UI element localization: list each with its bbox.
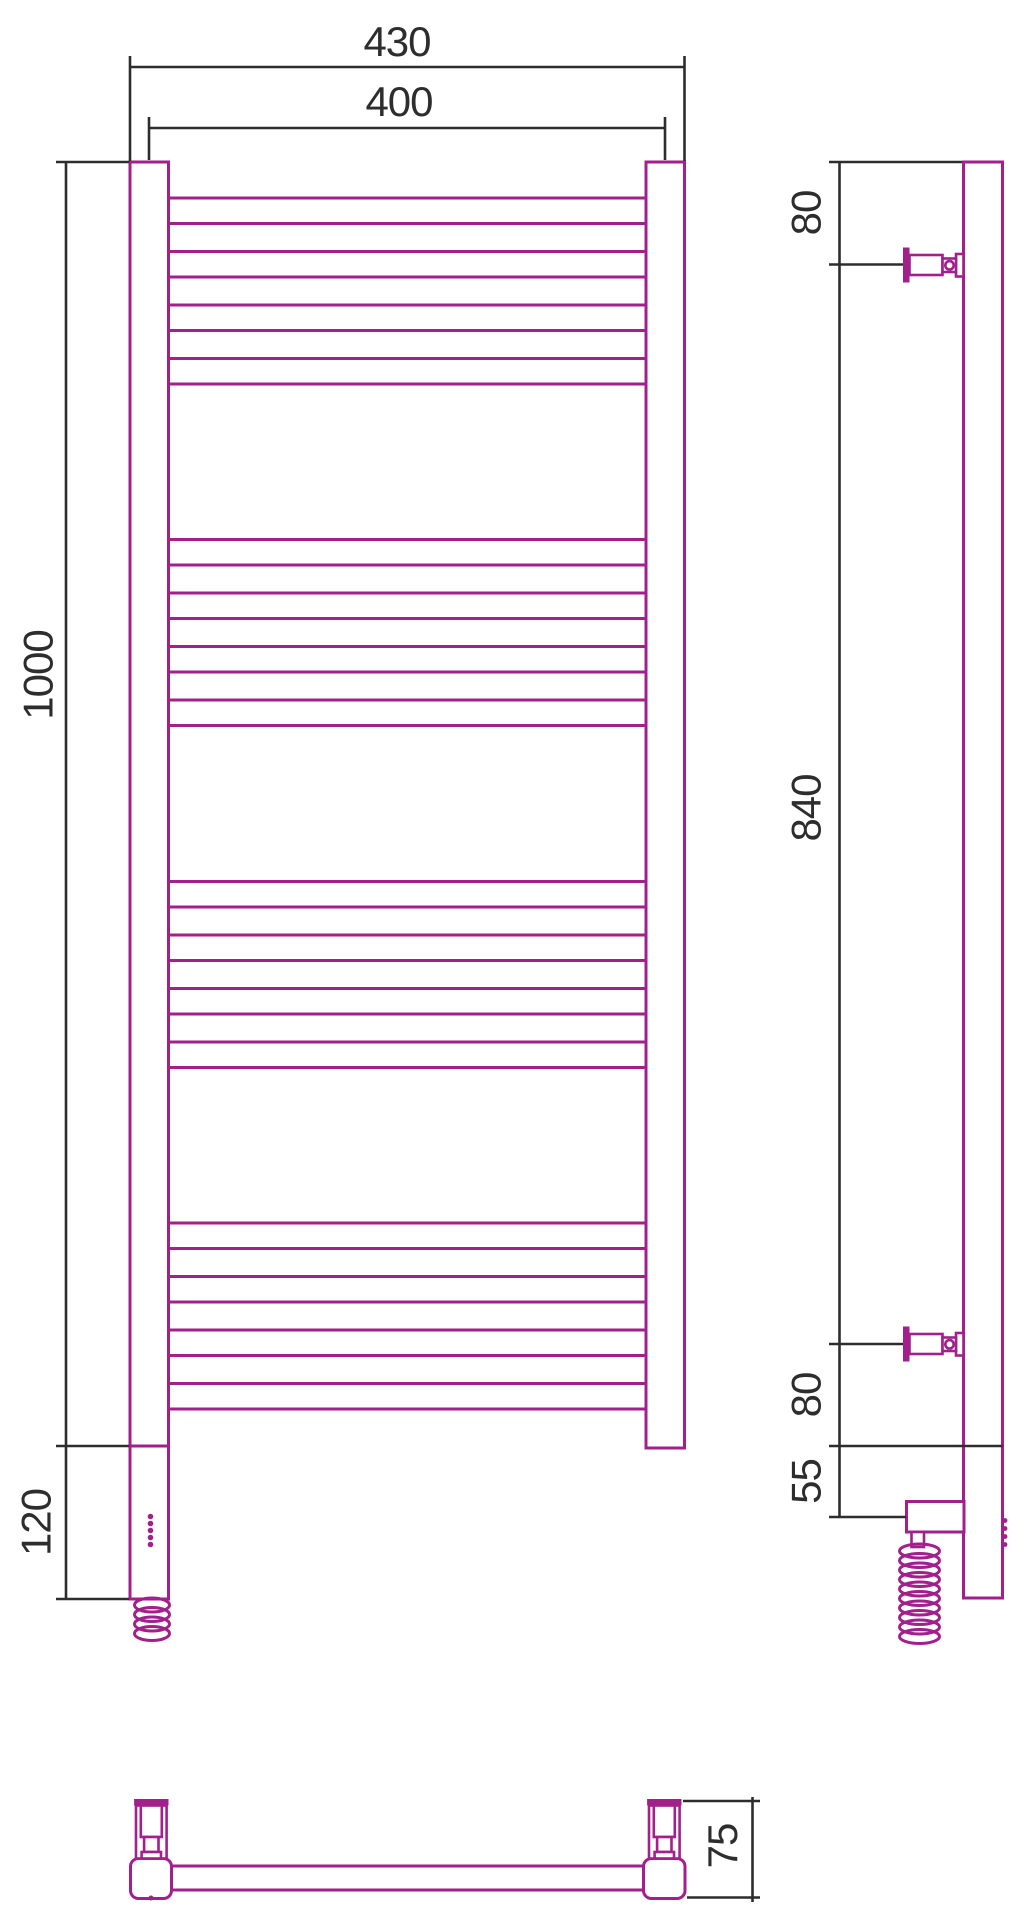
dim-label-bracket-span: 840 [783, 774, 830, 841]
horizontal-rung [169, 935, 647, 961]
dim-label-depth: 75 [699, 1824, 746, 1869]
horizontal-rung [169, 540, 647, 566]
bracket-base [655, 1852, 674, 1859]
front-right-vertical-tube [646, 162, 685, 1448]
side-heater-box [907, 1502, 965, 1533]
side-view [900, 162, 1008, 1644]
dim-label-heater-section: 120 [13, 1489, 60, 1556]
led-nub [1003, 1534, 1008, 1539]
drawing-page: 430 400 1000 120 [0, 0, 1024, 1920]
horizontal-rung [169, 1330, 647, 1356]
horizontal-rung [169, 700, 647, 726]
bottom-led-nub [149, 1896, 154, 1901]
bracket-arm [910, 255, 943, 275]
side-cable-coil [900, 1544, 940, 1644]
led-dot [148, 1542, 154, 1548]
bracket-clamp [144, 1837, 158, 1852]
bracket-arm [910, 1334, 943, 1354]
front-view [130, 162, 685, 1641]
led-nub [1003, 1526, 1008, 1531]
dim-label-bottom-bracket: 80 [783, 1373, 830, 1418]
bottom-right-wall-bracket [647, 1799, 681, 1859]
bottom-left-tube-section [131, 1859, 172, 1899]
horizontal-rung [169, 359, 647, 385]
bracket-clamp [657, 1837, 671, 1852]
bottom-view [131, 1799, 686, 1901]
bracket-arm [654, 1806, 675, 1838]
horizontal-rung [169, 593, 647, 619]
cable-coil-ring [900, 1630, 940, 1644]
horizontal-rung [169, 1277, 647, 1303]
front-left-vertical-tube [130, 162, 169, 1446]
horizontal-rung [169, 647, 647, 673]
horizontal-rung [169, 305, 647, 331]
horizontal-rung [169, 198, 647, 224]
horizontal-rung [169, 252, 647, 278]
dim-label-width-overall: 430 [363, 18, 430, 65]
side-bottom-wall-bracket [903, 1327, 964, 1362]
bottom-right-tube-section [644, 1859, 686, 1899]
horizontal-rung [169, 1384, 647, 1410]
bracket-arm [141, 1806, 162, 1838]
bracket-base [142, 1852, 161, 1859]
side-top-wall-bracket [903, 248, 964, 283]
dim-label-heater-offset: 55 [783, 1459, 830, 1504]
side-vertical-tube [964, 162, 1003, 1598]
led-dot [148, 1528, 154, 1534]
dim-label-width-centers: 400 [365, 78, 432, 125]
bottom-dimensions: 75 [683, 1797, 760, 1902]
horizontal-rung [169, 882, 647, 908]
front-rungs [169, 198, 647, 1409]
led-dot [148, 1535, 154, 1541]
bottom-left-wall-bracket [134, 1799, 168, 1859]
horizontal-rung [169, 1223, 647, 1249]
cable-coil-ring [135, 1627, 170, 1641]
led-nub [1003, 1542, 1008, 1547]
led-dot [148, 1521, 154, 1527]
front-cable-coil [135, 1598, 170, 1641]
horizontal-rung [169, 1042, 647, 1068]
bottom-rung-bar [171, 1866, 644, 1890]
bracket-screw [945, 1340, 953, 1348]
led-nub [1003, 1518, 1008, 1523]
drawing-canvas: 430 400 1000 120 [0, 0, 1024, 1920]
horizontal-rung [169, 989, 647, 1015]
led-dot [148, 1514, 154, 1520]
bracket-screw [945, 261, 953, 269]
dim-label-height: 1000 [15, 630, 62, 719]
dim-label-top-bracket: 80 [783, 191, 830, 236]
